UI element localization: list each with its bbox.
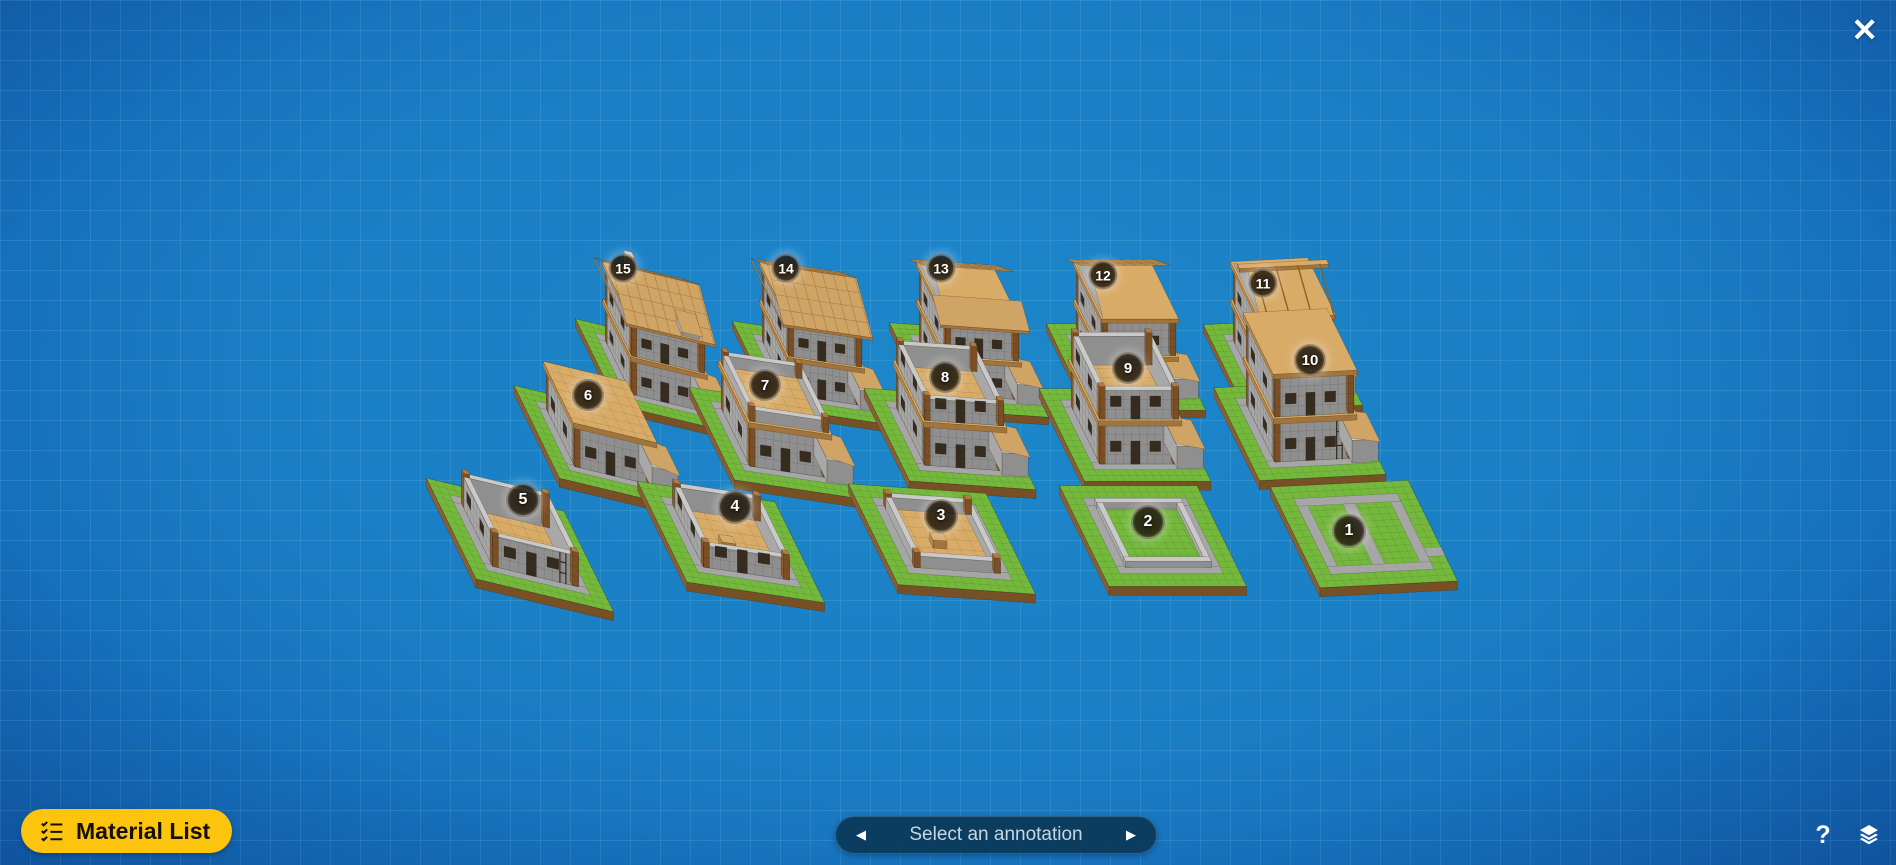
annotation-badge-7[interactable]: 7: [749, 369, 781, 401]
material-list-button[interactable]: Material List: [21, 809, 232, 853]
help-icon: ?: [1815, 821, 1830, 850]
annotation-badge-12[interactable]: 12: [1089, 261, 1118, 290]
annotation-badge-10[interactable]: 10: [1294, 344, 1326, 376]
layers-button[interactable]: [1852, 821, 1886, 851]
annotation-badge-8[interactable]: 8: [929, 361, 961, 393]
annotation-badge-13[interactable]: 13: [927, 254, 956, 283]
annotation-badge-3[interactable]: 3: [924, 499, 958, 533]
help-button[interactable]: ?: [1806, 818, 1840, 852]
annotation-badge-9[interactable]: 9: [1112, 352, 1144, 384]
material-list-label: Material List: [76, 818, 210, 845]
annotation-badge-1[interactable]: 1: [1332, 514, 1366, 548]
close-button[interactable]: ✕: [1845, 8, 1884, 52]
annotation-badge-11[interactable]: 11: [1249, 269, 1278, 298]
annotation-badge-6[interactable]: 6: [572, 379, 604, 411]
prev-annotation-button[interactable]: ◀: [846, 820, 876, 850]
next-annotation-button[interactable]: ▶: [1116, 820, 1146, 850]
annotation-badge-2[interactable]: 2: [1131, 505, 1165, 539]
annotation-badge-15[interactable]: 15: [609, 254, 638, 283]
annotation-badge-5[interactable]: 5: [506, 483, 540, 517]
annotation-badge-14[interactable]: 14: [772, 254, 801, 283]
checklist-icon: [39, 818, 65, 844]
annotation-nav: ◀ Select an annotation ▶: [835, 816, 1157, 854]
annotation-badge-4[interactable]: 4: [718, 490, 752, 524]
prev-arrow-icon: ◀: [856, 827, 866, 843]
annotation-badge-layer: 123456789101112131415: [0, 0, 1896, 865]
layers-icon: [1856, 822, 1882, 851]
next-arrow-icon: ▶: [1126, 827, 1136, 843]
close-icon: ✕: [1851, 12, 1878, 48]
annotation-nav-label: Select an annotation: [876, 824, 1116, 846]
